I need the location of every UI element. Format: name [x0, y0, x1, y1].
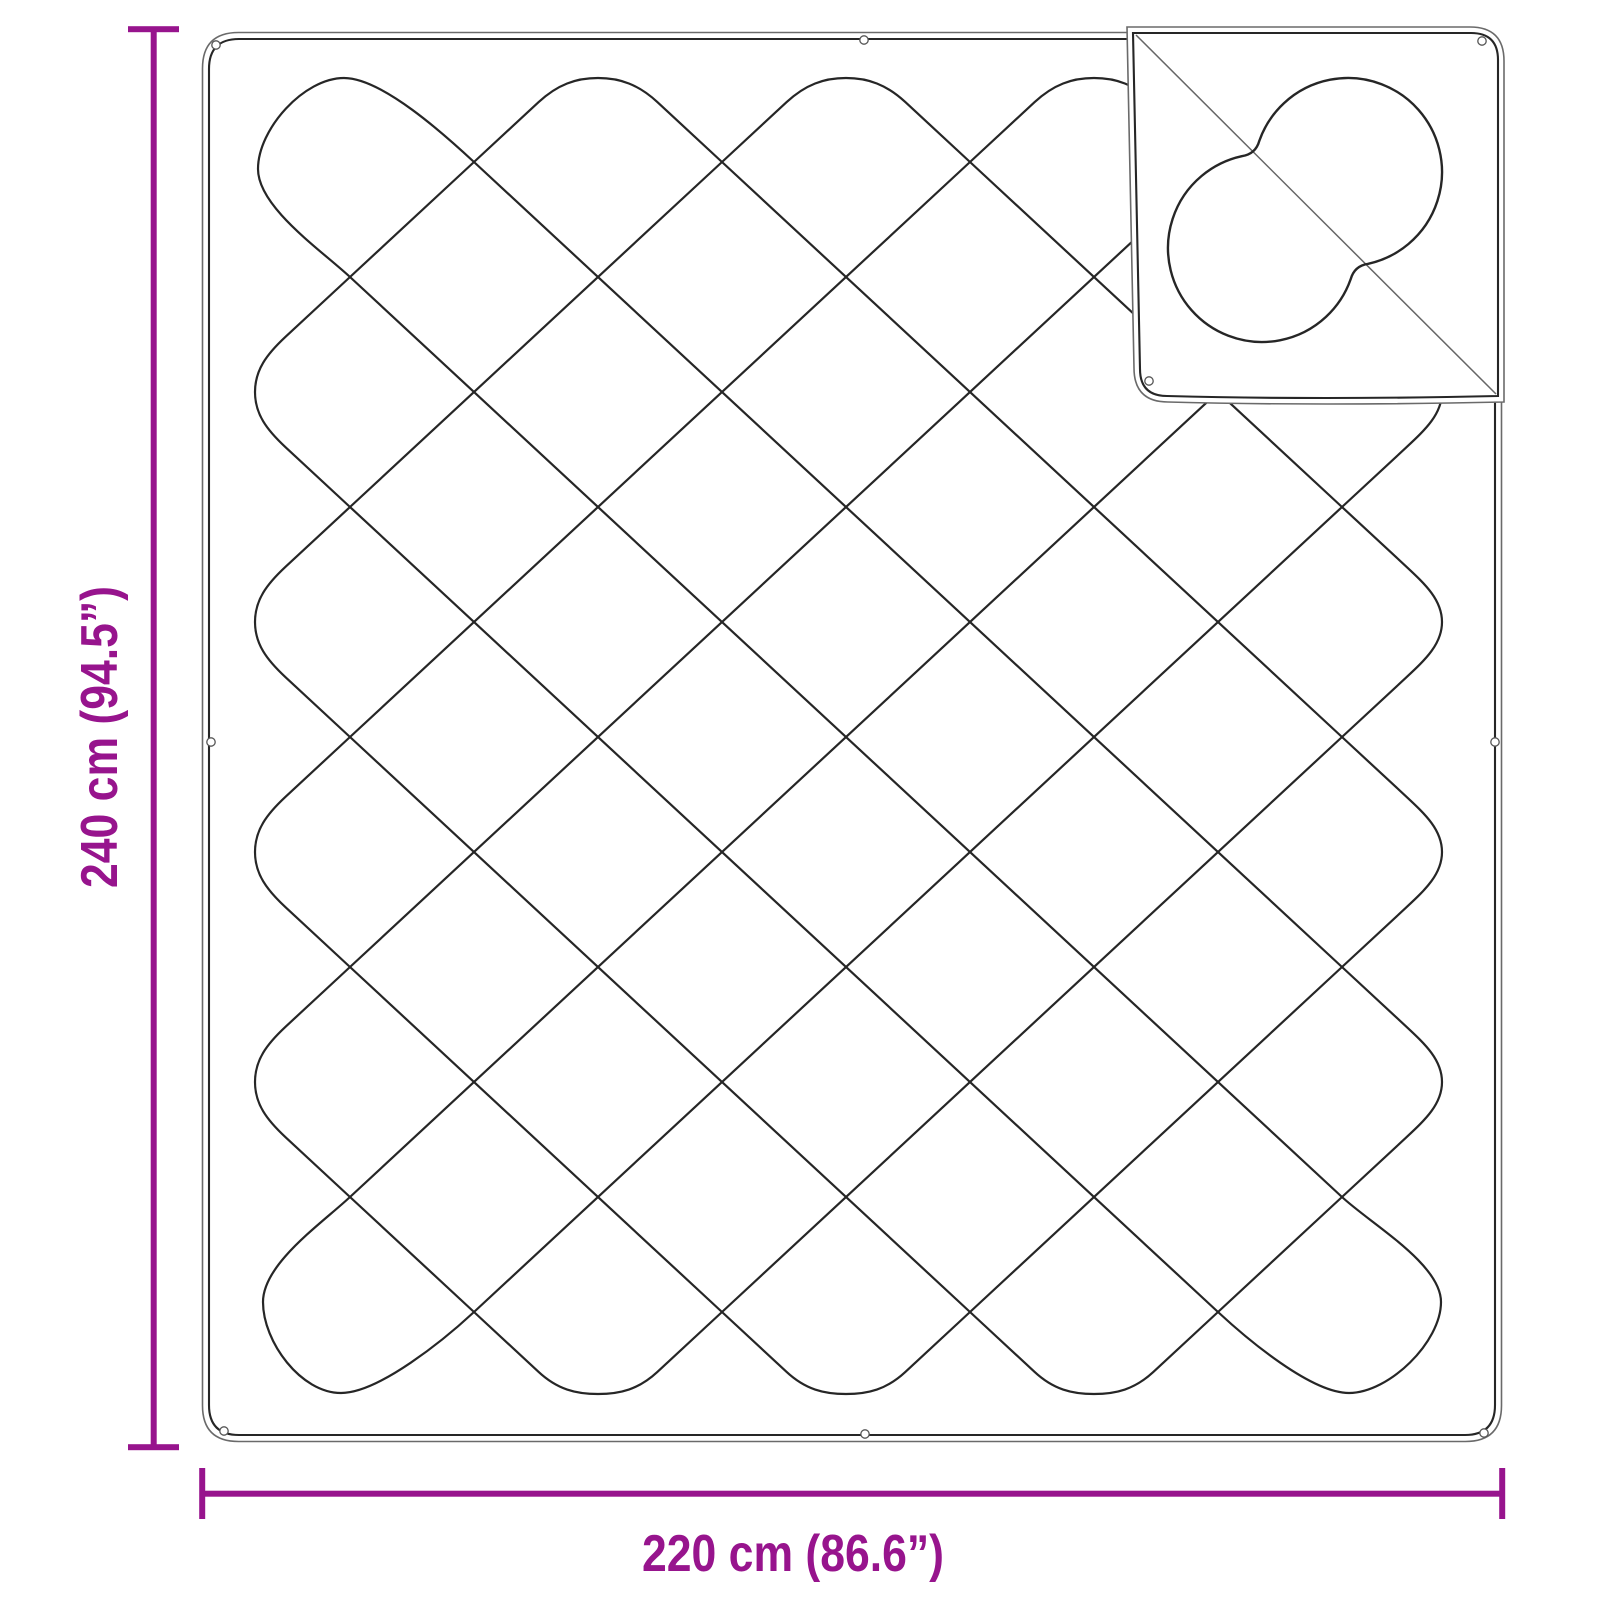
svg-text:240 cm (94.5”): 240 cm (94.5”)	[71, 586, 129, 888]
svg-text:220 cm (86.6”): 220 cm (86.6”)	[642, 1525, 944, 1583]
